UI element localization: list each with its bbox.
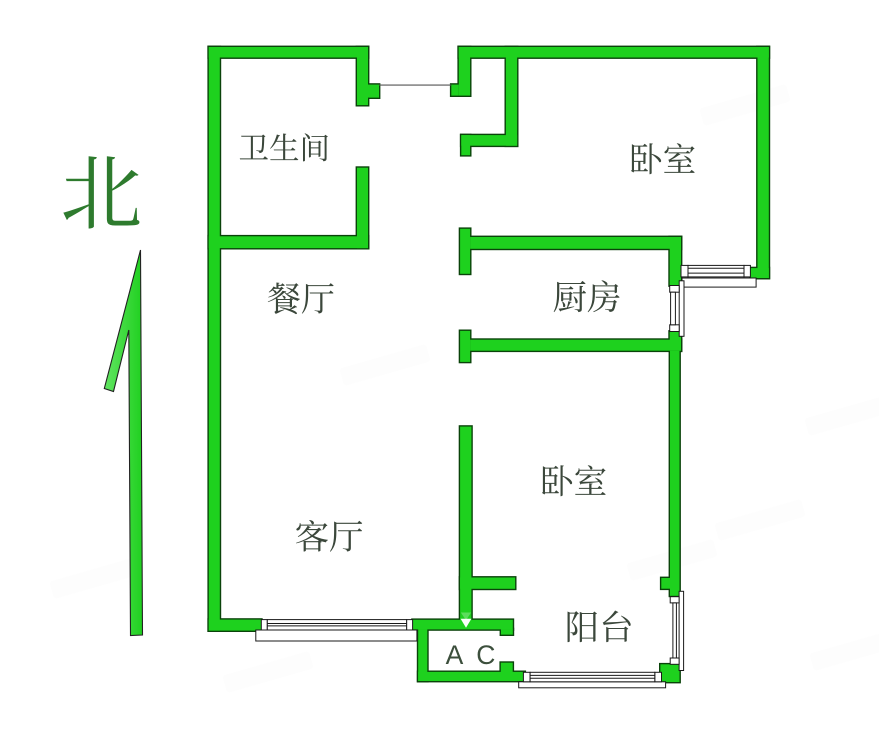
svg-text:A: A bbox=[446, 640, 464, 670]
svg-text:C: C bbox=[476, 640, 495, 670]
